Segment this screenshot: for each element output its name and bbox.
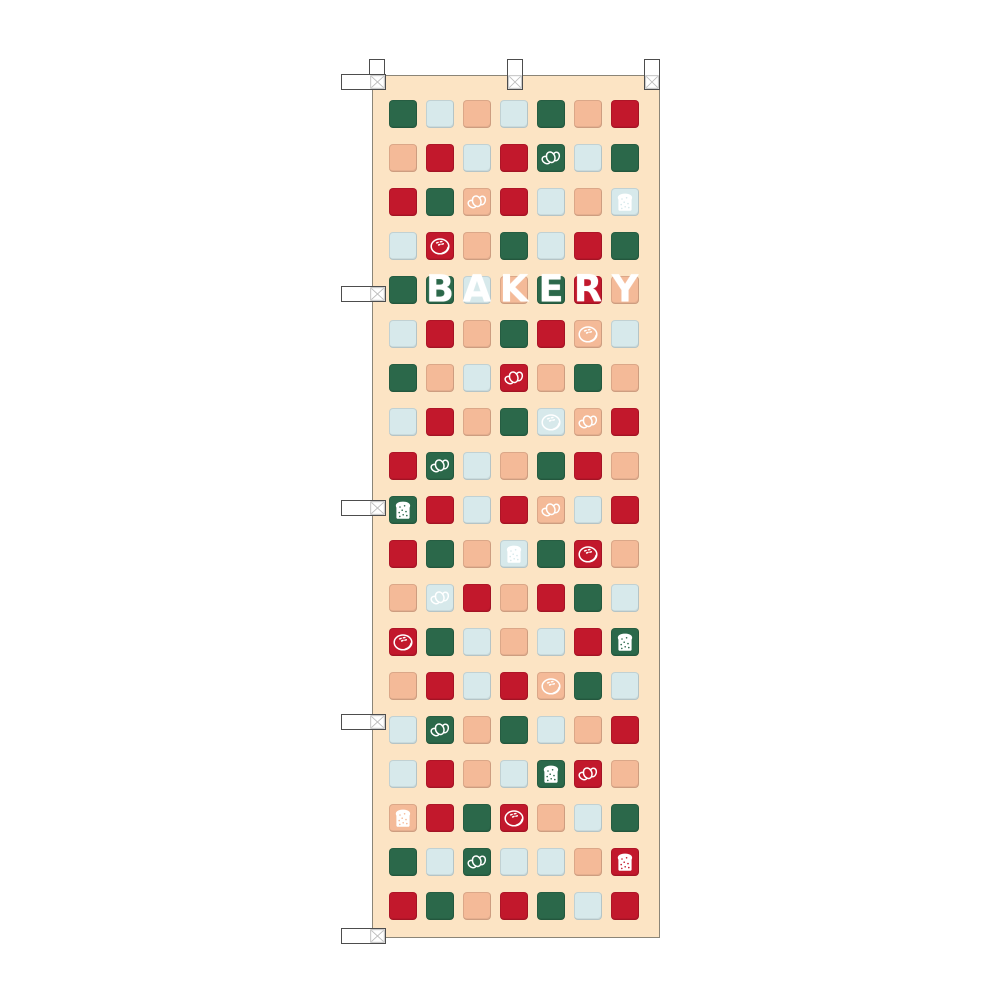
pattern-square xyxy=(426,804,454,832)
pattern-square xyxy=(389,628,417,656)
pattern-square xyxy=(611,364,639,392)
pattern-square xyxy=(537,452,565,480)
pattern-square xyxy=(389,276,417,304)
pattern-square xyxy=(611,848,639,876)
stitch-cross-icon xyxy=(645,75,659,89)
pattern-square xyxy=(426,672,454,700)
toast-icon xyxy=(391,498,415,522)
pattern-square xyxy=(500,144,528,172)
pattern-square xyxy=(574,452,602,480)
pattern-square xyxy=(500,848,528,876)
pattern-square xyxy=(574,496,602,524)
croissant-icon xyxy=(576,762,600,786)
letter-square: E xyxy=(537,276,565,304)
pattern-square xyxy=(426,188,454,216)
pole-sleeve-tab-top-right xyxy=(644,59,660,90)
pattern-square xyxy=(426,452,454,480)
pattern-square xyxy=(574,364,602,392)
pattern-square xyxy=(611,672,639,700)
nobori-banner: BAKERY xyxy=(372,75,660,938)
pattern-square xyxy=(574,100,602,128)
pattern-square xyxy=(611,804,639,832)
pattern-square xyxy=(574,540,602,568)
bun-icon xyxy=(576,542,600,566)
bakery-letter: B xyxy=(426,270,454,307)
toast-icon xyxy=(391,806,415,830)
stitch-cross-icon xyxy=(370,501,385,515)
pole-sleeve-tab-left-3 xyxy=(341,500,386,516)
product-photo: BAKERY xyxy=(0,0,1000,1000)
pattern-square xyxy=(611,452,639,480)
pattern-square xyxy=(389,540,417,568)
pattern-square xyxy=(389,892,417,920)
pattern-square xyxy=(463,540,491,568)
pattern-square xyxy=(389,804,417,832)
stitch-cross-icon xyxy=(370,715,385,729)
pattern-square xyxy=(426,320,454,348)
pattern-square xyxy=(574,892,602,920)
pattern-square xyxy=(463,760,491,788)
bun-icon xyxy=(539,674,563,698)
pattern-square xyxy=(426,540,454,568)
letter-square: B xyxy=(426,276,454,304)
pattern-square xyxy=(389,188,417,216)
pattern-square xyxy=(463,848,491,876)
pattern-square xyxy=(574,628,602,656)
toast-icon xyxy=(502,542,526,566)
pattern-square xyxy=(611,408,639,436)
bakery-letter: E xyxy=(538,270,563,307)
pole-sleeve-tab-top-center xyxy=(507,59,523,90)
pattern-square xyxy=(463,716,491,744)
pattern-square xyxy=(537,584,565,612)
pattern-square xyxy=(463,100,491,128)
croissant-icon xyxy=(428,586,452,610)
pattern-square xyxy=(426,364,454,392)
pole-sleeve-tab-left-5 xyxy=(341,928,386,944)
pattern-square xyxy=(611,628,639,656)
pattern-square xyxy=(500,408,528,436)
toast-icon xyxy=(613,850,637,874)
pattern-square xyxy=(426,408,454,436)
pattern-square xyxy=(463,452,491,480)
bun-icon xyxy=(539,410,563,434)
pattern-square xyxy=(426,496,454,524)
pattern-square xyxy=(500,364,528,392)
bakery-letter: R xyxy=(574,270,603,307)
pattern-square xyxy=(463,584,491,612)
pole-sleeve-tab-left-1 xyxy=(341,74,386,90)
pattern-square xyxy=(389,672,417,700)
pattern-square xyxy=(611,144,639,172)
pattern-square xyxy=(500,496,528,524)
pattern-square xyxy=(463,364,491,392)
croissant-icon xyxy=(502,366,526,390)
pattern-square xyxy=(574,232,602,260)
pattern-square xyxy=(426,892,454,920)
pattern-square xyxy=(611,320,639,348)
pattern-square xyxy=(537,804,565,832)
pattern-square xyxy=(500,232,528,260)
pattern-square xyxy=(463,892,491,920)
pattern-square xyxy=(500,672,528,700)
pattern-square xyxy=(426,144,454,172)
croissant-icon xyxy=(539,498,563,522)
croissant-icon xyxy=(465,850,489,874)
pattern-square xyxy=(537,496,565,524)
pattern-square xyxy=(500,584,528,612)
bakery-letter: A xyxy=(463,270,492,307)
pattern-square xyxy=(537,716,565,744)
pattern-square xyxy=(611,232,639,260)
pattern-square xyxy=(389,496,417,524)
pattern-square xyxy=(537,628,565,656)
pattern-square xyxy=(500,320,528,348)
pattern-square xyxy=(463,320,491,348)
bun-icon xyxy=(391,630,415,654)
toast-icon xyxy=(539,762,563,786)
letter-square: A xyxy=(463,276,491,304)
pattern-square xyxy=(611,892,639,920)
pattern-grid: BAKERY xyxy=(389,100,639,920)
pattern-square xyxy=(537,188,565,216)
stitch-cross-icon xyxy=(508,75,522,89)
toast-icon xyxy=(613,630,637,654)
pattern-square xyxy=(500,188,528,216)
pattern-square xyxy=(426,100,454,128)
letter-square: R xyxy=(574,276,602,304)
pattern-square xyxy=(389,760,417,788)
croissant-icon xyxy=(539,146,563,170)
croissant-icon xyxy=(576,410,600,434)
pattern-square xyxy=(537,892,565,920)
pole-sleeve-tab-left-2 xyxy=(341,286,386,302)
pattern-square xyxy=(389,320,417,348)
bun-icon xyxy=(428,234,452,258)
pattern-square xyxy=(500,760,528,788)
pattern-square xyxy=(611,100,639,128)
pattern-square xyxy=(426,848,454,876)
pattern-square xyxy=(500,628,528,656)
pattern-square xyxy=(463,188,491,216)
pattern-square xyxy=(389,100,417,128)
pattern-square xyxy=(537,100,565,128)
letter-square: K xyxy=(500,276,528,304)
pattern-square xyxy=(537,760,565,788)
bakery-letter: K xyxy=(500,270,529,307)
toast-icon xyxy=(613,190,637,214)
pattern-square xyxy=(574,716,602,744)
pattern-square xyxy=(463,804,491,832)
pattern-square xyxy=(463,144,491,172)
pattern-square xyxy=(389,716,417,744)
pole-sleeve-tab-left-4 xyxy=(341,714,386,730)
pattern-square xyxy=(389,364,417,392)
stitch-cross-icon xyxy=(370,287,385,301)
pattern-square xyxy=(463,408,491,436)
pattern-square xyxy=(574,804,602,832)
pattern-square xyxy=(574,848,602,876)
pattern-square xyxy=(611,496,639,524)
pattern-square xyxy=(537,364,565,392)
letter-square: Y xyxy=(611,276,639,304)
pattern-square xyxy=(537,320,565,348)
pattern-square xyxy=(574,144,602,172)
pattern-square xyxy=(574,408,602,436)
pattern-square xyxy=(463,628,491,656)
pattern-square xyxy=(574,188,602,216)
pattern-square xyxy=(500,892,528,920)
pattern-square xyxy=(537,672,565,700)
pattern-square xyxy=(463,232,491,260)
pattern-square xyxy=(389,144,417,172)
pattern-square xyxy=(611,540,639,568)
bakery-letter: Y xyxy=(612,270,639,307)
croissant-icon xyxy=(465,190,489,214)
pattern-square xyxy=(500,804,528,832)
croissant-icon xyxy=(428,718,452,742)
pattern-square xyxy=(500,540,528,568)
pattern-square xyxy=(611,716,639,744)
pattern-square xyxy=(500,452,528,480)
pattern-square xyxy=(537,232,565,260)
pattern-square xyxy=(500,716,528,744)
croissant-icon xyxy=(428,454,452,478)
pattern-square xyxy=(426,628,454,656)
bun-icon xyxy=(502,806,526,830)
pattern-square xyxy=(389,848,417,876)
pattern-square xyxy=(426,232,454,260)
pattern-square xyxy=(426,760,454,788)
pattern-square xyxy=(500,100,528,128)
stitch-cross-icon xyxy=(370,75,385,89)
pattern-square xyxy=(389,452,417,480)
pattern-square xyxy=(611,584,639,612)
stitch-cross-icon xyxy=(370,929,385,943)
pattern-square xyxy=(574,584,602,612)
pattern-square xyxy=(389,408,417,436)
pattern-square xyxy=(389,232,417,260)
pattern-square xyxy=(537,848,565,876)
pattern-square xyxy=(463,496,491,524)
pattern-square xyxy=(537,144,565,172)
pattern-square xyxy=(537,408,565,436)
pattern-square xyxy=(574,760,602,788)
pattern-square xyxy=(463,672,491,700)
pattern-square xyxy=(426,716,454,744)
pattern-square xyxy=(611,188,639,216)
pattern-square xyxy=(574,320,602,348)
bun-icon xyxy=(576,322,600,346)
pattern-square xyxy=(611,760,639,788)
pattern-square xyxy=(574,672,602,700)
pattern-square xyxy=(537,540,565,568)
pattern-square xyxy=(389,584,417,612)
pattern-square xyxy=(426,584,454,612)
